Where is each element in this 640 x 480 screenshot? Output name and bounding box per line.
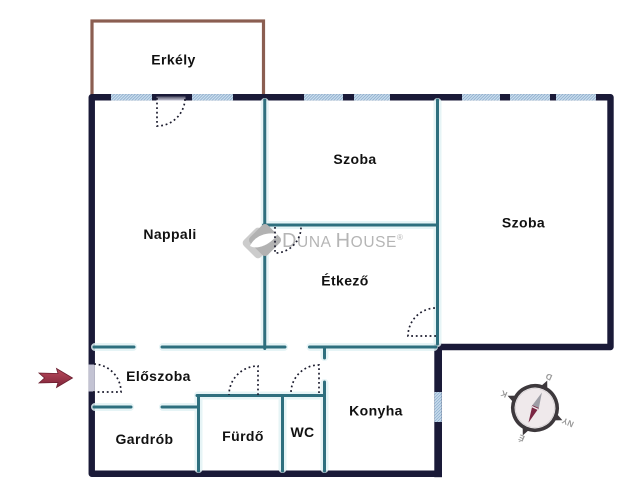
svg-text:Étkező: Étkező bbox=[321, 273, 369, 289]
svg-text:WC: WC bbox=[290, 424, 314, 440]
svg-text:Gardrób: Gardrób bbox=[115, 431, 173, 447]
svg-text:Nappali: Nappali bbox=[143, 226, 196, 242]
svg-text:Fürdő: Fürdő bbox=[222, 428, 264, 444]
svg-text:Erkély: Erkély bbox=[151, 52, 195, 68]
svg-text:Szoba: Szoba bbox=[333, 151, 376, 167]
svg-text:Előszoba: Előszoba bbox=[126, 368, 191, 384]
svg-text:Szoba: Szoba bbox=[502, 215, 545, 231]
svg-text:Konyha: Konyha bbox=[349, 403, 403, 419]
